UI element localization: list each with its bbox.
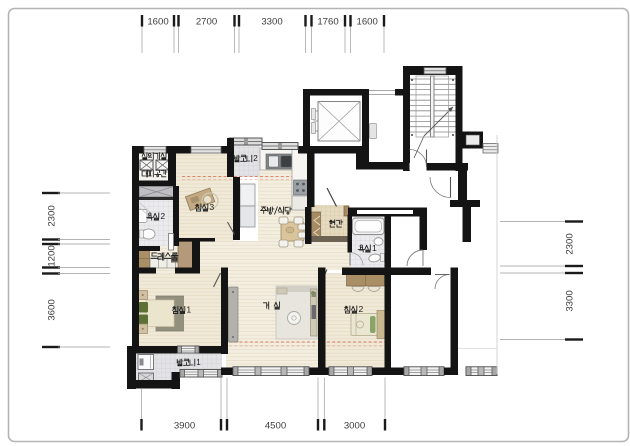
svg-text:3: 3: [209, 202, 214, 212]
svg-text:1: 1: [186, 305, 191, 315]
svg-text:3300: 3300: [261, 16, 282, 27]
svg-text:2300: 2300: [47, 205, 58, 226]
svg-text:1: 1: [196, 358, 201, 367]
svg-text:3600: 3600: [47, 299, 58, 320]
svg-text:1760: 1760: [317, 16, 338, 27]
svg-text:2: 2: [359, 304, 364, 314]
svg-text:1200: 1200: [47, 245, 58, 266]
svg-text:2700: 2700: [196, 16, 217, 27]
svg-text:3300: 3300: [565, 290, 576, 311]
svg-text:1: 1: [372, 243, 377, 253]
svg-text:2300: 2300: [565, 233, 576, 254]
svg-text:1600: 1600: [357, 16, 378, 27]
svg-text:1600: 1600: [147, 16, 168, 27]
svg-text:4500: 4500: [265, 420, 286, 431]
svg-text:3900: 3900: [174, 420, 195, 431]
svg-text:3000: 3000: [344, 420, 365, 431]
svg-text:2: 2: [160, 211, 165, 221]
svg-text:2: 2: [253, 154, 258, 163]
